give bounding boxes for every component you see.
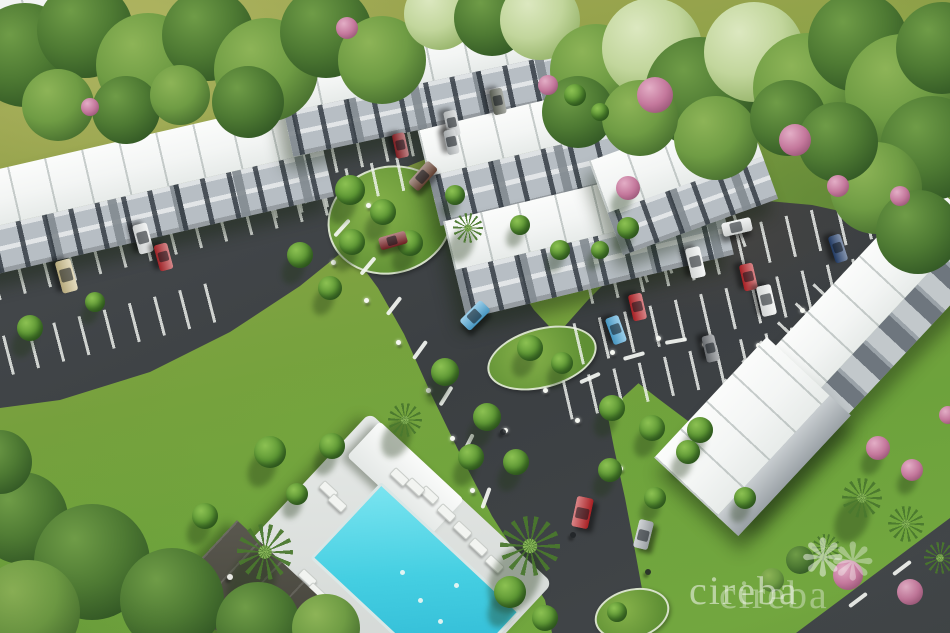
canopy-tree bbox=[876, 190, 950, 274]
property-aerial-render: ❋ ❋ cireba cireba bbox=[0, 0, 950, 633]
car-windshield bbox=[136, 230, 150, 244]
swimmer-dot bbox=[418, 598, 423, 603]
canopy-tree bbox=[760, 568, 784, 592]
round-tree bbox=[517, 335, 543, 361]
round-tree bbox=[676, 440, 700, 464]
round-tree bbox=[445, 185, 465, 205]
car-windshield bbox=[574, 506, 589, 520]
street-lamp bbox=[450, 436, 455, 441]
person-dot bbox=[570, 532, 576, 538]
palm-tree bbox=[888, 506, 924, 542]
round-tree bbox=[687, 417, 713, 443]
swimmer-dot bbox=[454, 583, 459, 588]
street-lamp bbox=[364, 298, 369, 303]
round-tree bbox=[591, 103, 609, 121]
round-tree bbox=[734, 487, 756, 509]
round-tree bbox=[591, 241, 609, 259]
street-lamp bbox=[610, 350, 615, 355]
pink-flowering-tree bbox=[890, 186, 910, 206]
round-tree bbox=[192, 503, 218, 529]
pink-flowering-tree bbox=[939, 406, 950, 424]
round-tree bbox=[598, 458, 622, 482]
round-tree bbox=[286, 483, 308, 505]
round-tree bbox=[550, 240, 570, 260]
round-tree bbox=[473, 403, 501, 431]
palm-tree bbox=[924, 542, 950, 574]
car-windshield bbox=[386, 234, 399, 246]
round-tree bbox=[287, 242, 313, 268]
street-lamp bbox=[543, 388, 548, 393]
street-lamp bbox=[575, 418, 580, 423]
pink-flowering-tree bbox=[538, 75, 558, 95]
canopy-tree bbox=[674, 96, 758, 180]
round-tree bbox=[532, 605, 558, 631]
ball-dot bbox=[227, 574, 233, 580]
round-tree bbox=[607, 602, 627, 622]
pink-flowering-tree bbox=[81, 98, 99, 116]
pink-flowering-tree bbox=[827, 175, 849, 197]
round-tree bbox=[458, 444, 484, 470]
car-windshield bbox=[688, 254, 702, 268]
canopy-tree bbox=[150, 65, 210, 125]
car-silver-car bbox=[632, 518, 654, 550]
car-windshield bbox=[630, 300, 643, 312]
palm-tree bbox=[388, 403, 422, 437]
palm-tree bbox=[453, 213, 483, 243]
pink-flowering-tree bbox=[833, 560, 863, 590]
car-windshield bbox=[492, 94, 504, 106]
pink-flowering-tree bbox=[616, 176, 640, 200]
round-tree bbox=[494, 576, 526, 608]
round-tree bbox=[318, 276, 342, 300]
car-windshield bbox=[636, 528, 650, 541]
round-tree bbox=[85, 292, 105, 312]
car-windshield bbox=[831, 241, 844, 254]
round-tree bbox=[254, 436, 286, 468]
pink-flowering-tree bbox=[336, 17, 358, 39]
car-windshield bbox=[759, 292, 773, 306]
car-windshield bbox=[741, 270, 754, 282]
person-dot bbox=[645, 569, 651, 575]
pink-flowering-tree bbox=[866, 436, 890, 460]
round-tree bbox=[617, 217, 639, 239]
canopy-tree bbox=[212, 66, 284, 138]
palm-tree bbox=[500, 516, 560, 576]
person-dot bbox=[500, 429, 506, 435]
car-windshield bbox=[704, 341, 716, 353]
palm-tree bbox=[812, 534, 840, 562]
street-lamp bbox=[396, 340, 401, 345]
palm-tree bbox=[237, 524, 293, 580]
car-windshield bbox=[729, 221, 742, 234]
pink-flowering-tree bbox=[779, 124, 811, 156]
canopy-tree bbox=[786, 546, 814, 574]
street-lamp bbox=[470, 488, 475, 493]
canopy-tree bbox=[92, 76, 160, 144]
car-windshield bbox=[58, 267, 73, 282]
swimmer-dot bbox=[438, 619, 443, 624]
street-lamp bbox=[656, 336, 661, 341]
pink-flowering-tree bbox=[637, 77, 673, 113]
round-tree bbox=[599, 395, 625, 421]
round-tree bbox=[503, 449, 529, 475]
round-tree bbox=[319, 433, 345, 459]
pink-flowering-tree bbox=[897, 579, 923, 605]
round-tree bbox=[551, 352, 573, 374]
palm-tree bbox=[842, 478, 882, 518]
car-windshield bbox=[445, 136, 456, 147]
round-tree bbox=[510, 215, 530, 235]
round-tree bbox=[639, 415, 665, 441]
car-windshield bbox=[394, 139, 406, 150]
car-windshield bbox=[609, 322, 623, 336]
round-tree bbox=[17, 315, 43, 341]
round-tree bbox=[339, 229, 365, 255]
round-tree bbox=[431, 358, 459, 386]
round-tree bbox=[370, 199, 396, 225]
street-lamp bbox=[800, 308, 805, 313]
pink-flowering-tree bbox=[901, 459, 923, 481]
round-tree bbox=[564, 84, 586, 106]
round-tree bbox=[644, 487, 666, 509]
car-windshield bbox=[156, 250, 169, 263]
car-windshield bbox=[446, 116, 458, 128]
round-tree bbox=[335, 175, 365, 205]
swimmer-dot bbox=[400, 570, 405, 575]
